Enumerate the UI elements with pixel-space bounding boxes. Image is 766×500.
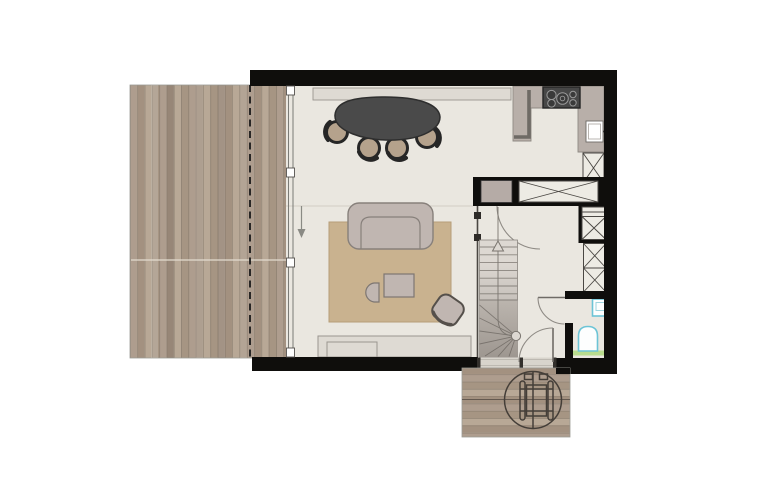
- partition-post: [474, 212, 481, 219]
- bottom-wall-living: [252, 357, 478, 371]
- wall-corner-over-porch: [556, 368, 570, 374]
- cabinet-x: [584, 268, 607, 292]
- cabinet-x: [584, 244, 607, 269]
- bathroom-left-wall: [565, 323, 573, 362]
- dining-chair: [387, 138, 408, 160]
- deck-terrace: [130, 85, 289, 358]
- right-wall: [604, 70, 617, 374]
- floor-plan-drawing: [0, 0, 766, 500]
- sideboard-bench: [313, 88, 511, 100]
- bathroom-wall-stub: [565, 291, 573, 298]
- door-jamb: [520, 358, 524, 369]
- mullion: [287, 86, 295, 95]
- mullion: [287, 348, 295, 357]
- tv-sideboard: [318, 336, 471, 357]
- deck-plank-light: [151, 85, 158, 358]
- wc-toilet: [579, 327, 598, 352]
- top-sideboard: [313, 88, 511, 100]
- door-jamb: [477, 358, 481, 369]
- storage-wall: [473, 177, 604, 206]
- entrance-threshold: [478, 358, 556, 369]
- stair-depth-shading: [480, 262, 518, 357]
- mullion: [287, 258, 295, 267]
- deck-plank-dark: [218, 85, 225, 358]
- deck-plank-light: [240, 85, 247, 358]
- stair-newel-post: [511, 331, 520, 340]
- coffee-table: [384, 274, 414, 297]
- entrance-porch: [462, 368, 570, 437]
- appliance-unit: [481, 181, 512, 203]
- floor-plan-canvas: [0, 0, 766, 500]
- side-table: [366, 283, 379, 302]
- top-wall: [250, 70, 617, 86]
- porch-deck-boards: [462, 368, 570, 437]
- cooktop: [543, 87, 580, 108]
- dining-table: [335, 97, 440, 140]
- deck-plank-light: [196, 85, 203, 358]
- mullion: [287, 168, 295, 177]
- built-in-cabinet-x: [519, 181, 598, 202]
- sofa: [348, 203, 433, 249]
- deck-plank-dark: [167, 85, 174, 358]
- dining-chair: [359, 138, 380, 160]
